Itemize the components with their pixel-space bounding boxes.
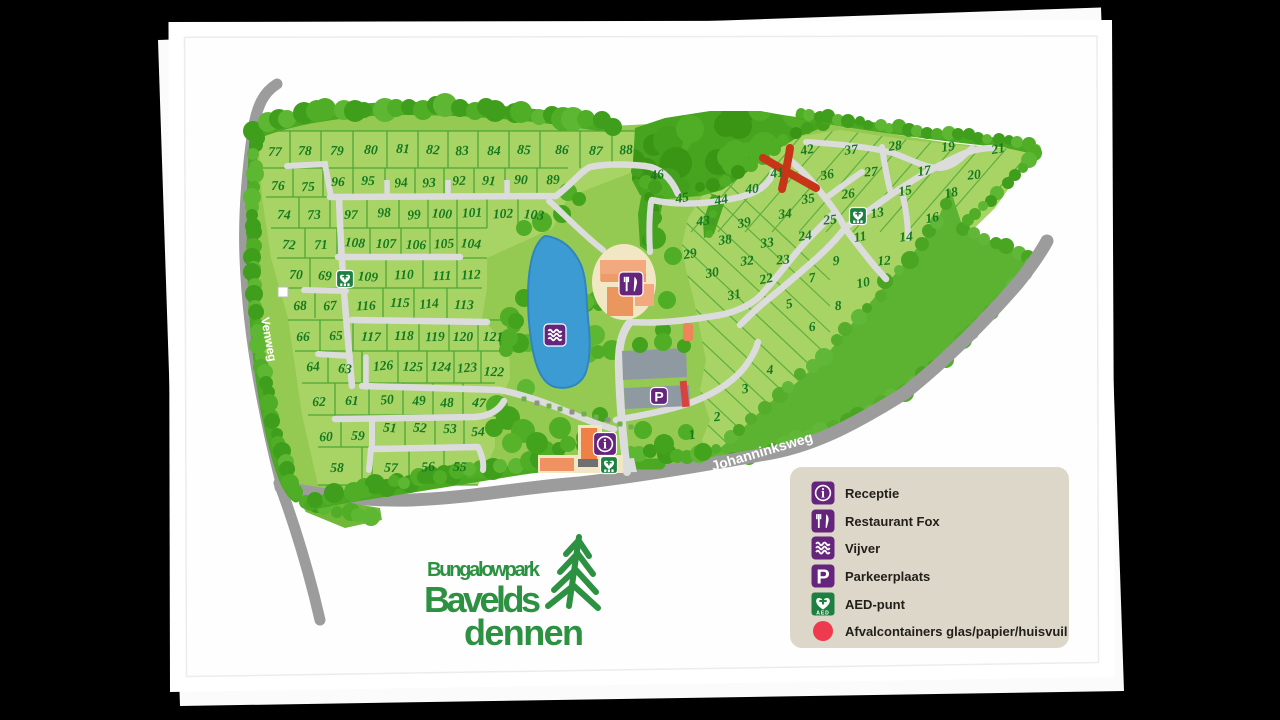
svg-text:48: 48 (439, 395, 455, 411)
svg-text:Receptie: Receptie (845, 486, 899, 501)
svg-text:112: 112 (461, 266, 482, 282)
svg-text:85: 85 (517, 142, 532, 158)
svg-text:64: 64 (306, 358, 321, 374)
svg-text:19: 19 (940, 138, 955, 154)
svg-text:28: 28 (886, 137, 903, 154)
svg-text:71: 71 (314, 237, 328, 252)
svg-text:76: 76 (271, 178, 285, 193)
svg-text:109: 109 (357, 268, 378, 284)
svg-text:Restaurant Fox: Restaurant Fox (845, 514, 940, 529)
svg-text:Parkeerplaats: Parkeerplaats (845, 569, 930, 584)
svg-text:90: 90 (514, 172, 528, 188)
svg-text:47: 47 (471, 394, 488, 410)
svg-text:54: 54 (471, 424, 485, 439)
svg-text:56: 56 (421, 459, 436, 475)
svg-text:70: 70 (289, 267, 303, 282)
svg-text:78: 78 (298, 143, 312, 159)
svg-text:38: 38 (716, 231, 733, 248)
svg-text:25: 25 (822, 211, 838, 227)
svg-text:81: 81 (396, 141, 410, 157)
svg-text:99: 99 (407, 206, 422, 222)
svg-text:AED: AED (816, 610, 829, 616)
svg-text:65: 65 (329, 328, 343, 343)
svg-text:107: 107 (376, 236, 398, 251)
svg-text:69: 69 (318, 267, 333, 283)
svg-text:96: 96 (331, 174, 345, 189)
svg-text:89: 89 (546, 172, 561, 188)
svg-text:121: 121 (483, 329, 504, 345)
svg-text:51: 51 (383, 420, 398, 436)
svg-text:46: 46 (648, 166, 665, 183)
svg-text:i: i (603, 438, 607, 453)
svg-text:68: 68 (293, 298, 308, 314)
svg-text:44: 44 (712, 191, 729, 209)
svg-text:98: 98 (377, 205, 392, 221)
svg-text:83: 83 (455, 142, 470, 158)
svg-text:84: 84 (487, 143, 501, 158)
svg-text:79: 79 (330, 143, 345, 159)
svg-text:59: 59 (351, 428, 365, 444)
svg-text:104: 104 (460, 235, 482, 252)
svg-text:13: 13 (869, 204, 885, 221)
svg-text:62: 62 (312, 394, 326, 409)
svg-text:P: P (654, 388, 663, 404)
svg-text:dennen: dennen (464, 612, 584, 653)
svg-text:66: 66 (296, 329, 310, 344)
svg-text:57: 57 (384, 460, 399, 476)
svg-text:24: 24 (796, 227, 813, 244)
svg-text:60: 60 (319, 429, 334, 445)
svg-text:72: 72 (282, 237, 297, 253)
svg-text:4: 4 (765, 362, 774, 378)
svg-text:86: 86 (555, 142, 569, 157)
svg-text:41: 41 (768, 164, 784, 181)
svg-text:75: 75 (301, 179, 315, 195)
svg-text:120: 120 (453, 329, 474, 344)
svg-text:30: 30 (703, 264, 720, 281)
svg-text:27: 27 (863, 163, 880, 179)
svg-text:58: 58 (330, 460, 344, 475)
svg-text:29: 29 (681, 245, 698, 262)
svg-text:AED-punt: AED-punt (845, 597, 906, 612)
svg-text:53: 53 (443, 421, 457, 436)
svg-text:95: 95 (361, 173, 375, 188)
svg-text:74: 74 (277, 207, 292, 223)
svg-text:115: 115 (390, 295, 410, 310)
svg-text:110: 110 (394, 267, 414, 283)
svg-text:102: 102 (493, 206, 514, 222)
svg-text:118: 118 (394, 328, 414, 343)
svg-text:55: 55 (453, 459, 467, 475)
svg-text:119: 119 (425, 329, 445, 345)
svg-text:61: 61 (345, 393, 359, 408)
svg-text:14: 14 (899, 228, 914, 244)
svg-text:50: 50 (380, 391, 395, 407)
svg-text:87: 87 (589, 143, 605, 159)
svg-text:92: 92 (452, 173, 466, 189)
svg-text:94: 94 (394, 174, 409, 190)
svg-text:124: 124 (430, 358, 451, 374)
svg-text:52: 52 (413, 420, 428, 436)
svg-text:21: 21 (989, 140, 1006, 157)
svg-text:73: 73 (307, 207, 322, 223)
svg-text:45: 45 (673, 189, 690, 206)
svg-text:108: 108 (344, 234, 366, 251)
svg-text:88: 88 (619, 142, 634, 158)
svg-text:93: 93 (422, 175, 436, 191)
svg-text:31: 31 (725, 286, 742, 304)
svg-text:23: 23 (775, 251, 791, 267)
svg-text:105: 105 (434, 235, 455, 251)
svg-text:32: 32 (739, 252, 755, 269)
svg-text:100: 100 (431, 205, 452, 221)
svg-text:Bungalowpark: Bungalowpark (427, 559, 541, 581)
svg-text:Afvalcontainers glas/papier/hu: Afvalcontainers glas/papier/huisvuil (845, 624, 1068, 639)
svg-text:116: 116 (356, 298, 376, 314)
svg-text:106: 106 (406, 237, 427, 253)
svg-text:P: P (816, 566, 829, 588)
svg-text:125: 125 (403, 359, 424, 375)
svg-text:26: 26 (839, 185, 856, 202)
svg-text:34: 34 (777, 205, 793, 222)
svg-text:16: 16 (924, 209, 940, 226)
svg-text:82: 82 (426, 142, 441, 158)
svg-text:Vijver: Vijver (845, 541, 880, 556)
svg-text:91: 91 (482, 173, 497, 189)
svg-text:114: 114 (419, 295, 440, 312)
svg-text:111: 111 (432, 268, 451, 283)
svg-text:101: 101 (462, 204, 483, 220)
svg-text:20: 20 (966, 166, 982, 183)
svg-text:67: 67 (323, 297, 339, 313)
svg-text:126: 126 (372, 357, 394, 374)
svg-text:77: 77 (268, 144, 283, 159)
svg-text:11: 11 (852, 228, 867, 245)
svg-text:123: 123 (456, 359, 478, 376)
svg-text:113: 113 (454, 297, 474, 313)
svg-text:117: 117 (361, 328, 383, 344)
svg-text:33: 33 (758, 234, 775, 251)
svg-text:12: 12 (877, 252, 892, 268)
svg-text:97: 97 (344, 207, 359, 222)
svg-text:43: 43 (695, 212, 711, 228)
svg-text:35: 35 (799, 190, 816, 207)
svg-text:49: 49 (411, 392, 427, 408)
svg-text:63: 63 (338, 360, 353, 376)
svg-text:80: 80 (364, 142, 379, 158)
svg-text:122: 122 (483, 363, 504, 379)
svg-text:103: 103 (523, 206, 545, 223)
svg-text:i: i (821, 487, 825, 502)
svg-text:40: 40 (744, 180, 760, 196)
